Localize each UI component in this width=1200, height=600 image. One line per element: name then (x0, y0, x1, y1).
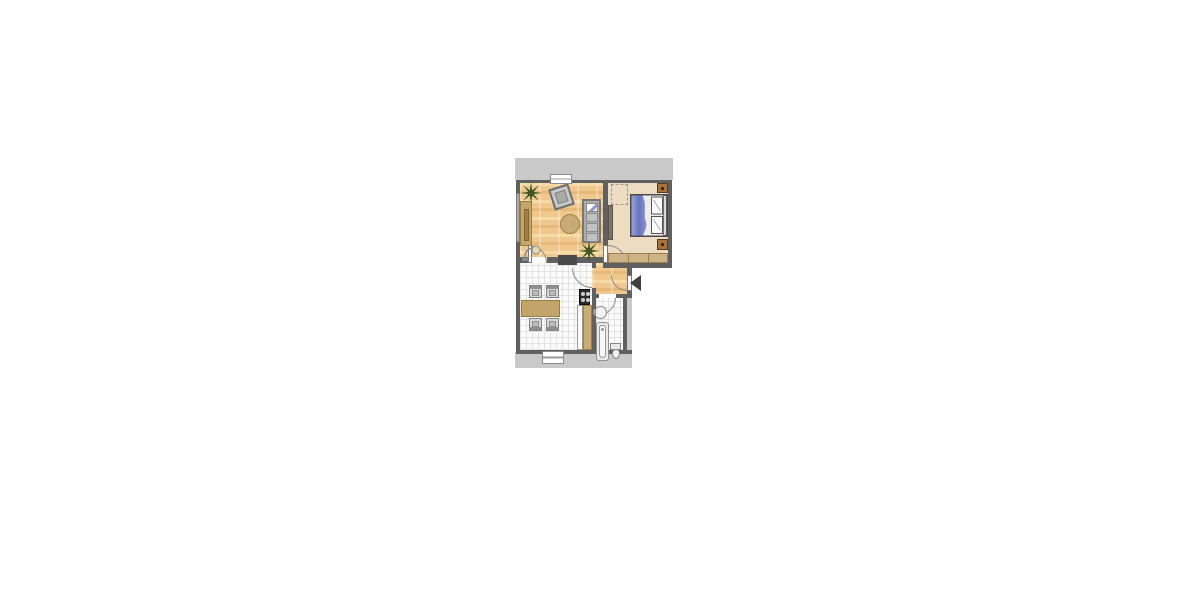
double-bed (630, 194, 668, 237)
wall (623, 298, 627, 350)
bathtub (596, 322, 609, 361)
wall (627, 263, 632, 275)
kitchen-bottom-window (542, 351, 564, 364)
dining-chair (546, 285, 559, 298)
sofa-blanket (586, 203, 598, 212)
chair-seat (549, 321, 556, 327)
chair-back (547, 327, 558, 330)
wardrobe-outline-dashed (611, 184, 628, 205)
dining-chair (529, 285, 542, 298)
exterior-strip-right (627, 298, 632, 352)
wall (668, 180, 672, 268)
burner-icon (581, 298, 585, 302)
kitchen-cabinet (583, 305, 592, 350)
chair-back (547, 286, 558, 289)
wall (603, 263, 672, 268)
armchair-cushion (554, 190, 568, 205)
sofa-cushion (586, 213, 598, 222)
wall (592, 294, 599, 298)
round-table (560, 214, 580, 234)
bench-seam (648, 254, 649, 262)
sideboard-handle (524, 209, 529, 241)
radiator (608, 205, 613, 240)
chair-seat (532, 321, 539, 327)
dining-chair (546, 318, 559, 331)
chair-seat (532, 290, 539, 296)
sideboard (520, 201, 532, 246)
dining-table (521, 300, 560, 317)
dining-chair (529, 318, 542, 331)
floor-plan (515, 158, 673, 370)
nightstand (657, 183, 668, 193)
bathtub-drain (601, 328, 604, 331)
bench-seam (628, 254, 629, 262)
plant-icon (578, 240, 600, 262)
nightstand (657, 239, 668, 250)
wall (627, 291, 632, 298)
chair-back (530, 286, 541, 289)
exterior-band-top (515, 158, 673, 180)
burner-icon (581, 292, 585, 296)
sink-tap (593, 309, 596, 315)
floor-lamp-icon (522, 244, 544, 262)
bench (608, 253, 668, 263)
nightstand-knob (661, 243, 664, 246)
wall (547, 257, 558, 263)
wall (592, 263, 596, 268)
chair-seat (549, 290, 556, 296)
burner-icon (586, 292, 590, 296)
living-room-top-window (550, 174, 572, 184)
stove (579, 289, 590, 305)
sofa (582, 199, 601, 243)
sofa-cushion (586, 223, 598, 232)
burner-icon (586, 298, 590, 302)
chimney-block (558, 255, 577, 265)
chair-back (530, 327, 541, 330)
entrance-arrow-icon (630, 275, 641, 291)
nightstand-knob (661, 187, 664, 190)
